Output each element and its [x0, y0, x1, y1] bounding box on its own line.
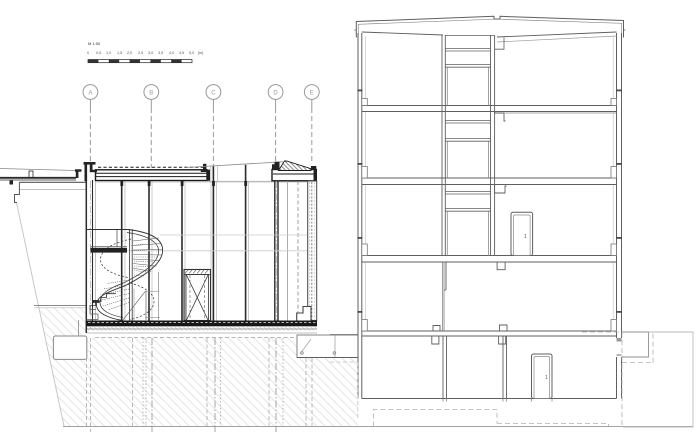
svg-text:M 1:50: M 1:50: [88, 41, 101, 46]
svg-text:E: E: [310, 91, 314, 97]
svg-text:B: B: [149, 91, 153, 97]
svg-text:4,5: 4,5: [179, 51, 184, 55]
svg-text:3,0: 3,0: [148, 51, 153, 55]
svg-text:1: 1: [545, 375, 548, 381]
svg-text:[m]: [m]: [198, 51, 203, 55]
svg-text:1: 1: [524, 234, 527, 240]
svg-text:D: D: [273, 91, 278, 97]
svg-text:2,5: 2,5: [138, 51, 143, 55]
svg-text:1,5: 1,5: [117, 51, 122, 55]
svg-text:2,0: 2,0: [127, 51, 132, 55]
svg-text:5,0: 5,0: [189, 51, 194, 55]
svg-text:A: A: [88, 91, 92, 97]
svg-text:3,5: 3,5: [158, 51, 163, 55]
svg-text:0: 0: [87, 51, 89, 55]
svg-text:4,0: 4,0: [169, 51, 174, 55]
svg-text:C: C: [211, 91, 216, 97]
svg-text:1,0: 1,0: [106, 51, 111, 55]
svg-text:0,5: 0,5: [96, 51, 101, 55]
